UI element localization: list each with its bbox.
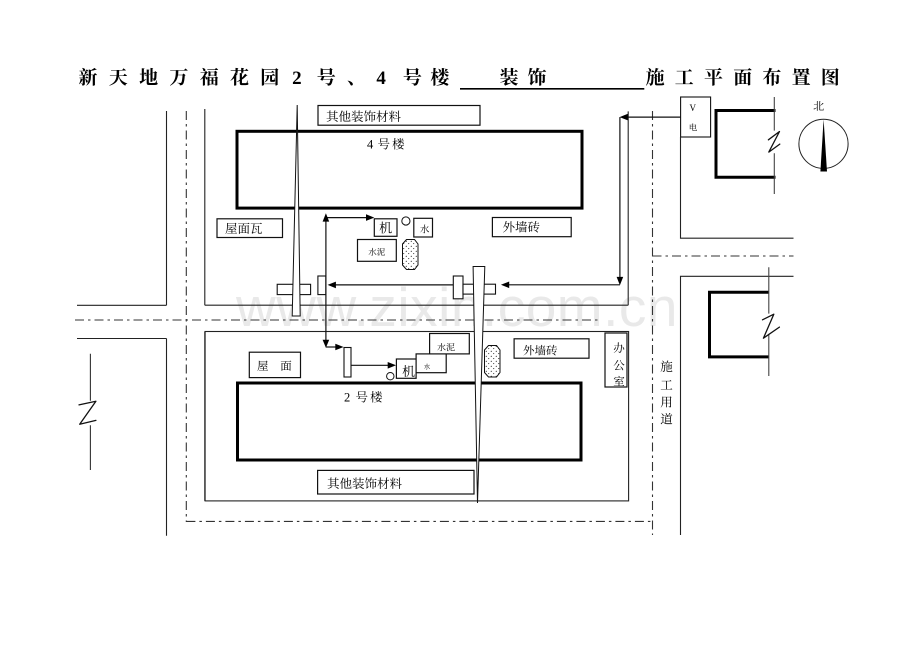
svg-text:机: 机: [402, 361, 415, 380]
svg-text:楼: 楼: [430, 63, 449, 90]
svg-text:装: 装: [499, 63, 518, 90]
svg-text:4: 4: [376, 63, 386, 90]
svg-text:号楼: 号楼: [378, 135, 407, 153]
svg-text:室: 室: [613, 373, 625, 389]
svg-text:屋面瓦: 屋面瓦: [225, 219, 263, 237]
svg-text:施工平面布置图: 施工平面布置图: [646, 63, 850, 90]
svg-text:2: 2: [292, 63, 302, 90]
svg-text:道: 道: [660, 410, 673, 428]
svg-text:水: 水: [424, 362, 431, 371]
svg-text:号楼: 号楼: [356, 388, 385, 406]
svg-text:公: 公: [613, 357, 625, 373]
svg-text:面: 面: [280, 358, 292, 374]
svg-text:4: 4: [367, 135, 374, 153]
svg-text:号: 号: [403, 63, 422, 90]
svg-text:工: 工: [660, 376, 673, 394]
svg-text:电: 电: [689, 122, 698, 134]
svg-text:施: 施: [660, 357, 673, 375]
svg-text:屋: 屋: [257, 358, 269, 374]
svg-text:水泥: 水泥: [437, 340, 455, 353]
svg-text:其他装饰材料: 其他装饰材料: [326, 107, 402, 125]
svg-text:办: 办: [613, 340, 625, 356]
svg-text:新天地万福花园: 新天地万福花园: [79, 63, 291, 90]
svg-text:北: 北: [813, 98, 824, 114]
svg-text:水泥: 水泥: [368, 246, 386, 258]
svg-text:V: V: [690, 101, 697, 114]
svg-text:号: 号: [317, 63, 336, 90]
svg-text:用: 用: [660, 393, 673, 411]
svg-text:2: 2: [344, 388, 350, 406]
svg-text:机: 机: [379, 217, 392, 236]
svg-text:外墙砖: 外墙砖: [503, 218, 541, 236]
svg-text:饰: 饰: [527, 63, 546, 90]
svg-text:水: 水: [420, 221, 430, 235]
svg-text:其他装饰材料: 其他装饰材料: [327, 474, 403, 492]
svg-text:、: 、: [347, 63, 366, 90]
svg-text:外墙砖: 外墙砖: [523, 343, 558, 359]
